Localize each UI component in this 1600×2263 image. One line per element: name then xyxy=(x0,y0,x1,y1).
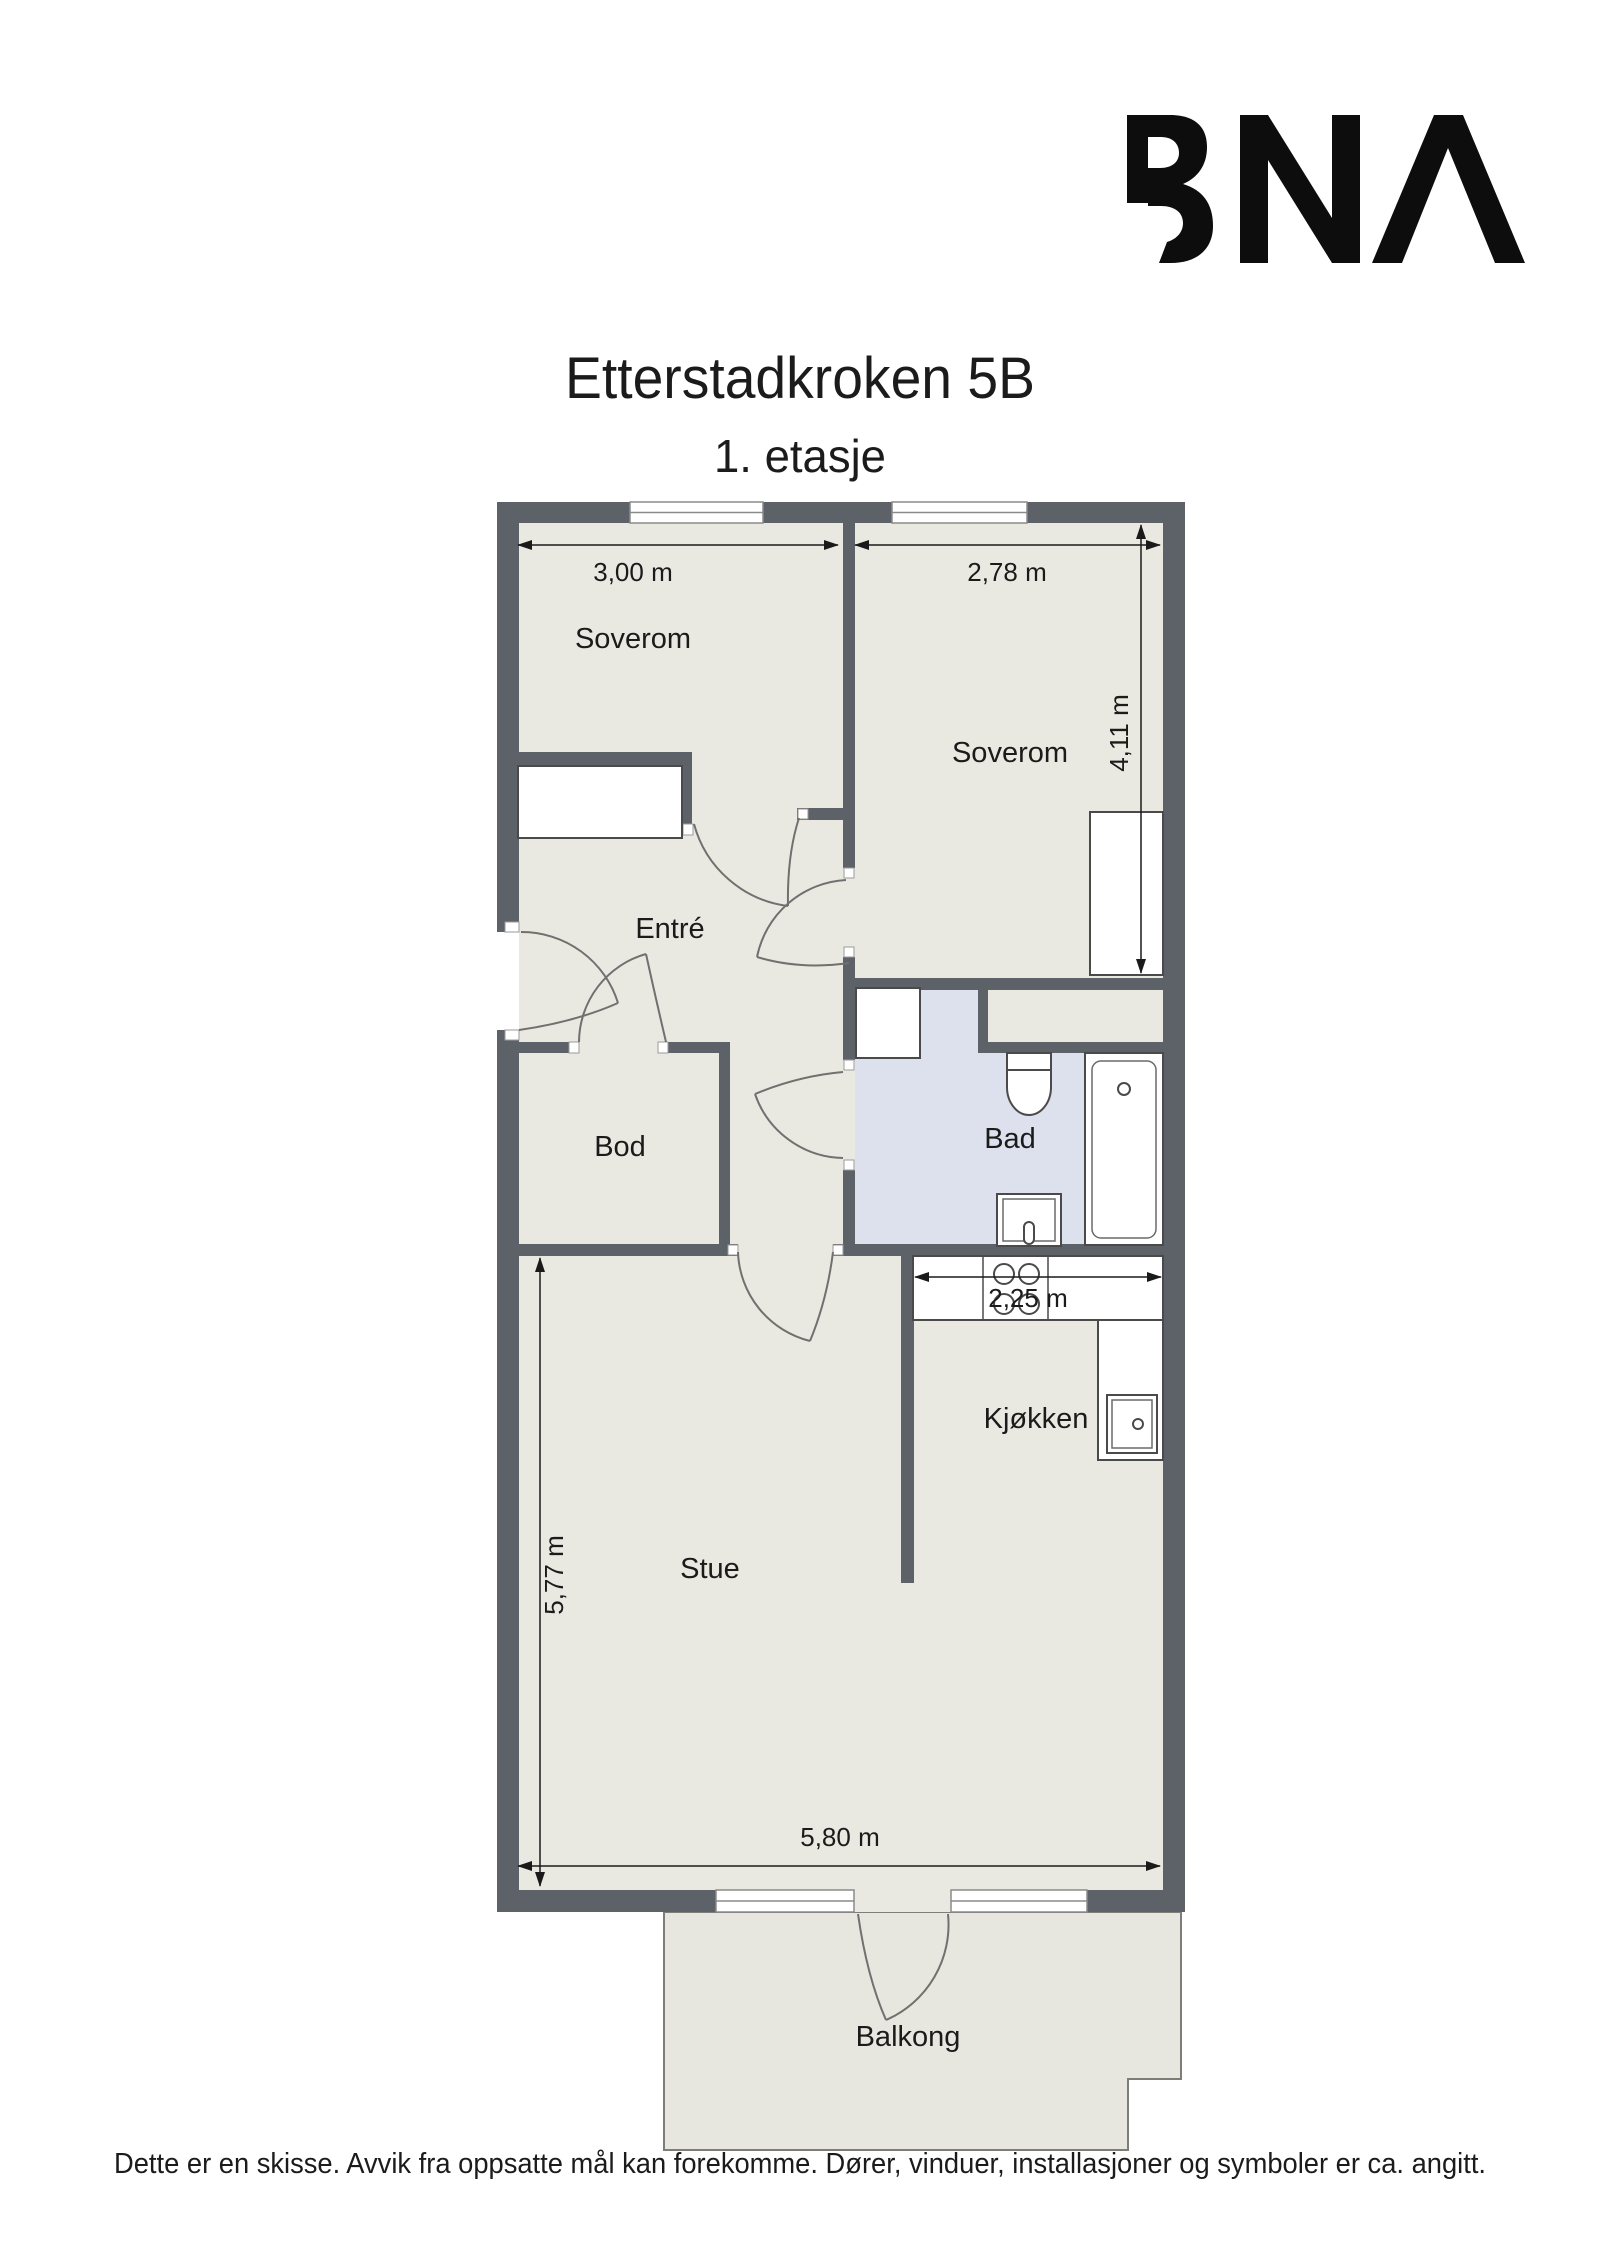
wall-bad-left-lower xyxy=(843,1170,855,1244)
disclaimer-text: Dette er en skisse. Avvik fra oppsatte m… xyxy=(114,2148,1486,2180)
dim-label-soverom1-width: 3,00 m xyxy=(593,557,673,587)
stove-burner xyxy=(1019,1264,1039,1284)
door-jamb xyxy=(569,1042,579,1053)
door-jamb xyxy=(798,809,808,819)
toilet-tank xyxy=(1007,1053,1051,1070)
kitchen-sink-drain xyxy=(1133,1419,1143,1429)
room-label-kjokken: Kjøkken xyxy=(984,1403,1089,1435)
wardrobe xyxy=(1090,812,1163,975)
wall-wardrobe-stub xyxy=(682,752,692,826)
door-jamb xyxy=(833,1245,843,1255)
wall-left-upper xyxy=(497,502,519,932)
room-label-entre: Entré xyxy=(635,913,704,945)
dim-label-soverom2-width: 2,78 m xyxy=(967,557,1047,587)
door-jamb xyxy=(844,947,854,957)
door-jamb xyxy=(505,1030,519,1040)
room-label-balkong: Balkong xyxy=(856,2021,961,2053)
wall-niche-bottom xyxy=(978,1042,1163,1053)
dim-label-stue-height: 5,77 m xyxy=(539,1535,569,1615)
stove-burner xyxy=(994,1264,1014,1284)
wall-bad-left-upper xyxy=(843,990,855,1060)
door-jamb xyxy=(844,1060,854,1070)
bna-logo xyxy=(1127,115,1525,263)
shaft-niche-floor xyxy=(988,990,1163,1042)
wall-bod-top-left xyxy=(519,1042,569,1053)
logo-letter-a xyxy=(1372,115,1525,263)
door-jamb xyxy=(683,824,693,835)
dim-label-kjokken-width: 2,25 m xyxy=(988,1283,1068,1313)
dim-label-stue-width: 5,80 m xyxy=(800,1822,880,1852)
balcony-door-threshold xyxy=(854,1890,951,1912)
room-label-bad: Bad xyxy=(984,1123,1036,1155)
room-label-bod: Bod xyxy=(594,1131,646,1163)
wall-soverom1-bottom xyxy=(517,752,682,765)
dim-label-soverom2-height: 4,11 m xyxy=(1104,694,1134,772)
bathtub-drain xyxy=(1118,1083,1130,1095)
wall-right xyxy=(1163,502,1185,1912)
wall-stue-top-left xyxy=(497,1244,738,1256)
door-jamb xyxy=(844,868,854,878)
page-title: Etterstadkroken 5B xyxy=(565,346,1035,411)
washing-machine xyxy=(856,988,920,1058)
wall-bottom-right xyxy=(1087,1890,1185,1912)
door-jamb xyxy=(728,1245,738,1255)
logo-letter-n xyxy=(1240,115,1360,263)
logo-letter-b xyxy=(1127,115,1213,263)
front-door-opening xyxy=(497,932,519,1030)
wardrobe xyxy=(518,766,682,838)
room-label-soverom2: Soverom xyxy=(952,737,1068,769)
page-subtitle: 1. etasje xyxy=(714,430,886,482)
door-jamb xyxy=(844,1160,854,1170)
wall-bedroom-divider xyxy=(843,523,855,868)
wall-top xyxy=(497,502,1185,523)
wall-bottom-left xyxy=(497,1890,716,1912)
wall-left-lower xyxy=(497,1030,519,1912)
door-jamb xyxy=(505,922,519,932)
bathroom-sink-tap xyxy=(1024,1222,1034,1244)
room-label-soverom1: Soverom xyxy=(575,623,691,655)
floorplan-page: Etterstadkroken 5B 1. etasje xyxy=(0,0,1600,2263)
toilet-bowl xyxy=(1007,1070,1051,1115)
wall-bod-right xyxy=(719,1042,730,1256)
room-label-stue: Stue xyxy=(680,1553,740,1585)
door-jamb xyxy=(658,1042,668,1053)
